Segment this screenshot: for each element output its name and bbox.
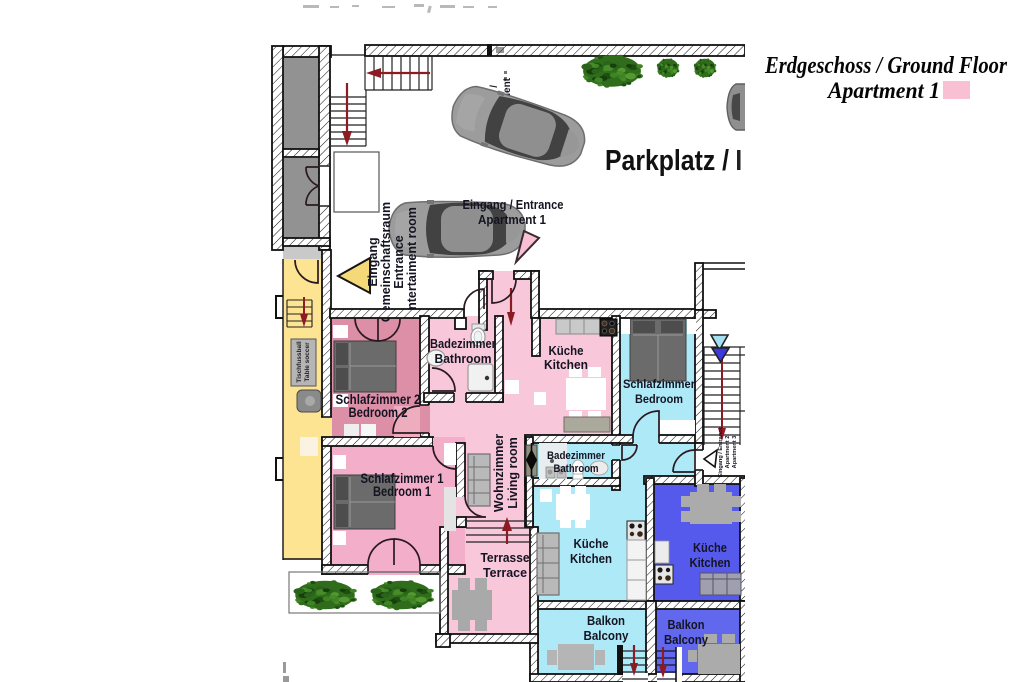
svg-text:Küche: Küche — [574, 537, 609, 551]
svg-text:Eingang / Entrance: Eingang / Entrance — [718, 427, 724, 478]
svg-text:Parkplatz /: Parkplatz / — [605, 145, 729, 177]
svg-text:Bathroom: Bathroom — [554, 463, 599, 475]
svg-text:Balcony: Balcony — [664, 633, 708, 647]
svg-text:Apartment 3: Apartment 3 — [732, 436, 738, 469]
svg-text:Bathroom: Bathroom — [435, 352, 492, 366]
svg-text:Apartment 2: Apartment 2 — [725, 436, 731, 469]
svg-text:Kitchen: Kitchen — [544, 358, 588, 372]
svg-text:Tischfussball: Tischfussball — [296, 341, 303, 383]
svg-text:Küche: Küche — [549, 344, 584, 358]
svg-text:Balkon: Balkon — [668, 618, 705, 632]
svg-text:Apartment 1: Apartment 1 — [826, 78, 940, 103]
svg-text:Bedroom: Bedroom — [635, 392, 683, 406]
svg-text:Entrance: Entrance — [392, 235, 406, 289]
svg-text:Erdgeschoss / Ground Floor: Erdgeschoss / Ground Floor — [764, 53, 1007, 79]
svg-text:Badezimmer: Badezimmer — [430, 337, 496, 351]
svg-text:Balcony: Balcony — [584, 629, 629, 643]
svg-text:Terrace: Terrace — [483, 566, 527, 580]
svg-text:Balkon: Balkon — [587, 614, 625, 628]
svg-text:Bedroom 1: Bedroom 1 — [373, 484, 431, 499]
svg-text:Kitchen: Kitchen — [570, 552, 612, 566]
svg-text:Living room: Living room — [506, 437, 520, 509]
svg-text:entertaiment room: entertaiment room — [405, 207, 419, 317]
svg-text:Eingang / Entrance: Eingang / Entrance — [463, 198, 564, 212]
svg-text:Küche: Küche — [693, 541, 727, 555]
svg-text:Wohnzimmer: Wohnzimmer — [492, 434, 506, 512]
svg-text:Bedroom 2: Bedroom 2 — [349, 405, 408, 420]
svg-text:Badezimmer: Badezimmer — [547, 450, 606, 462]
svg-text:Eingang: Eingang — [366, 237, 380, 286]
svg-text:Schlafzimmer: Schlafzimmer — [623, 377, 695, 391]
svg-text:Terrasse: Terrasse — [481, 551, 530, 565]
svg-text:Gemeinschaftsraum: Gemeinschaftsraum — [379, 202, 393, 322]
svg-text:Kitchen: Kitchen — [690, 556, 731, 570]
svg-text:Apartment 1: Apartment 1 — [478, 213, 546, 227]
svg-text:Table soccer: Table soccer — [304, 342, 311, 382]
